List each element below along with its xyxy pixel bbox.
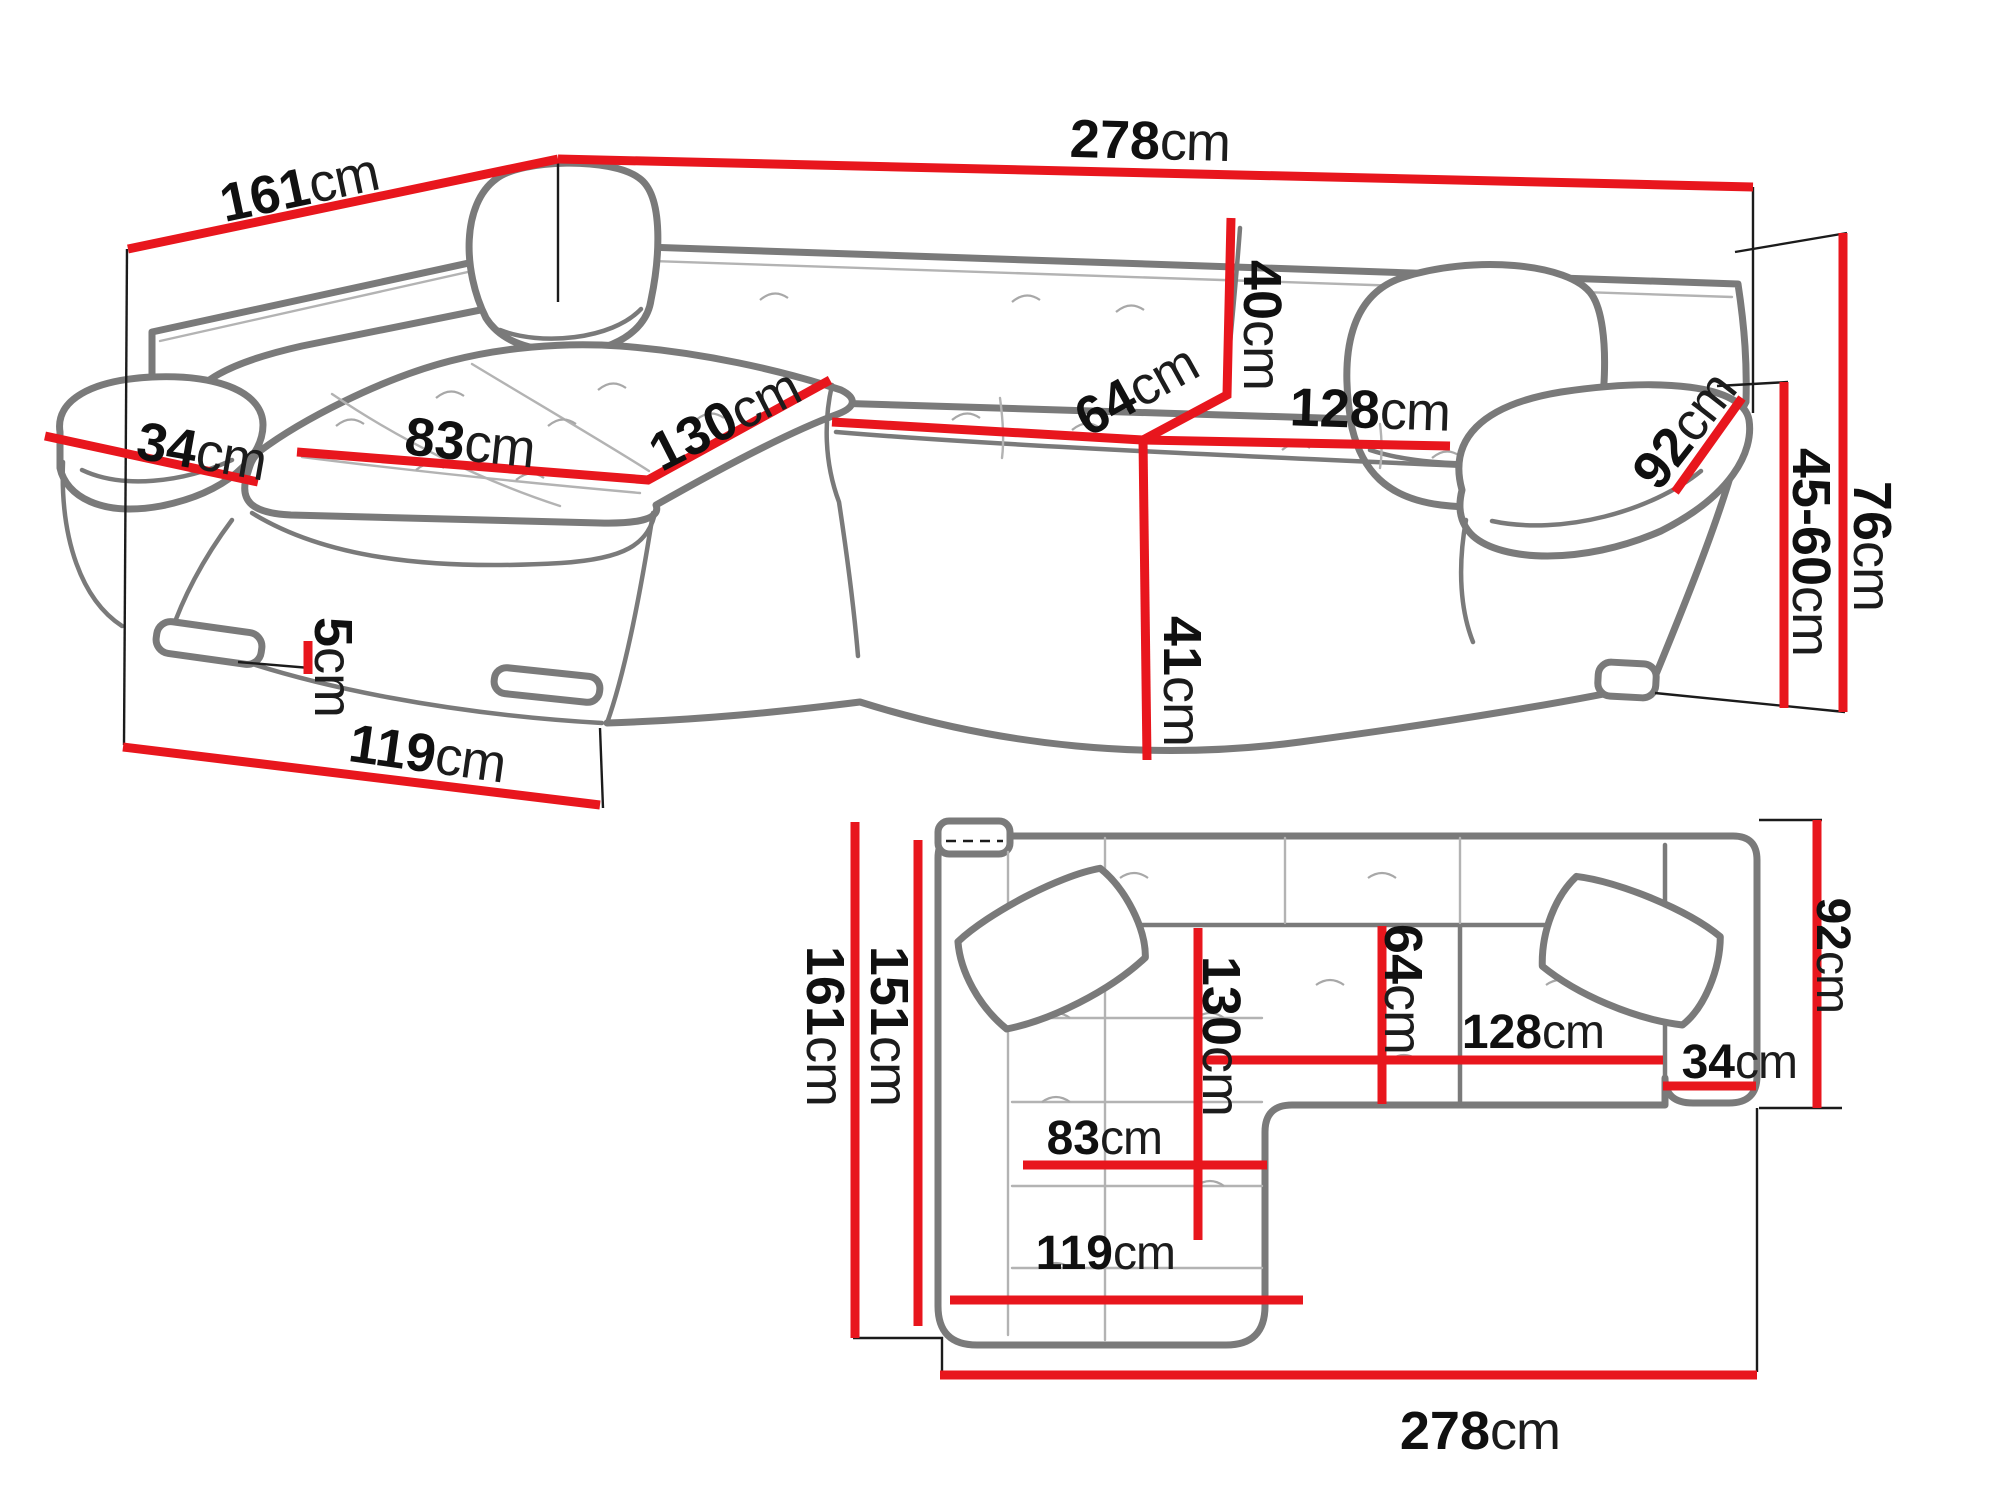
plan-dim-label-chaise-width: 83 cm (1047, 1112, 1162, 1165)
dim-unit: cm (192, 421, 271, 492)
dim-value: 83 (1047, 1112, 1100, 1165)
dim-value: 92 (1806, 898, 1859, 951)
plan-ext-bottom-left (853, 1338, 942, 1372)
dim-value: 34 (1682, 1036, 1736, 1089)
dim-value: 128 (1462, 1006, 1542, 1059)
plan-dim-label-chaise-outer: 119 cm (1036, 1227, 1175, 1280)
dim-value: 40 (1232, 260, 1292, 320)
leg-chaise-front (493, 667, 601, 704)
ext-chaise-front-corner (600, 728, 603, 808)
dim-label-chaise-outer: 119 cm (345, 713, 509, 794)
dim-value: 64 (1373, 924, 1433, 984)
dim-value: 119 (345, 713, 440, 785)
plan-dim-label-total-width: 278 cm (1400, 1401, 1560, 1461)
plan-dim-label-side-depth: 92 cm (1806, 898, 1859, 1013)
pillow-left (469, 163, 658, 352)
dim-unit: cm (1379, 380, 1451, 442)
dim-unit: cm (1842, 541, 1902, 611)
plan-dim-label-total-depth: 161 cm (795, 946, 855, 1106)
plan-dim-label-armrest-width: 34 cm (1682, 1036, 1797, 1089)
dim-value: 119 (1036, 1227, 1113, 1280)
dim-label-total-height: 76 cm (1842, 481, 1902, 611)
dim-line-seat-height (1143, 440, 1147, 760)
dim-unit: cm (1781, 586, 1841, 656)
dim-label-seat-height: 41 cm (1152, 616, 1212, 746)
dim-value: 45-60 (1781, 448, 1841, 586)
dim-unit: cm (1373, 984, 1433, 1054)
dim-value: 41 (1152, 616, 1212, 676)
plan-dim-label-inner-depth: 151 cm (859, 946, 919, 1106)
chaise-front-left-edge (171, 520, 232, 633)
dim-value: 161 (795, 946, 855, 1036)
base-bottom-edge (607, 684, 1652, 751)
dim-value: 128 (1289, 377, 1381, 440)
dim-unit: cm (432, 725, 510, 794)
plan-dim-label-chaise-length: 130 cm (1191, 956, 1251, 1116)
sofa-legs (154, 620, 1657, 704)
leg-left (154, 620, 263, 666)
dim-label-total-width: 278 cm (1069, 109, 1231, 173)
dim-unit: cm (1806, 951, 1859, 1013)
dim-value: 278 (1069, 109, 1161, 171)
dim-unit: cm (1113, 1227, 1175, 1280)
dim-label-total-depth: 161 cm (215, 142, 384, 234)
dim-value: 161 (215, 156, 316, 233)
plan-dim-label-seat-depth: 64 cm (1373, 924, 1433, 1054)
dim-value: 278 (1400, 1401, 1490, 1461)
dim-value: 151 (859, 946, 919, 1036)
dim-label-leg-height: 5 cm (303, 617, 363, 717)
dim-unit: cm (1152, 676, 1212, 746)
dim-unit: cm (795, 1036, 855, 1106)
plan-corner-block (938, 821, 1010, 854)
dim-label-backrest-height: 40 cm (1232, 260, 1292, 390)
dim-unit: cm (1490, 1401, 1560, 1461)
dim-label-seat-width: 128 cm (1289, 377, 1451, 443)
dim-value: 83 (402, 406, 468, 472)
dim-unit: cm (1159, 111, 1231, 173)
dim-unit: cm (1232, 320, 1292, 390)
dim-label-adjustable-height: 45-60 cm (1781, 448, 1841, 656)
chaise-front-right-edge (607, 513, 653, 723)
leg-right (1597, 662, 1657, 699)
dim-value: 34 (132, 411, 202, 481)
dim-value: 5 (303, 617, 363, 647)
dim-unit: cm (1735, 1036, 1797, 1089)
dim-unit: cm (303, 647, 363, 717)
dim-unit: cm (1191, 1046, 1251, 1116)
diagram-svg: 161 cm 278 cm 34 cm 83 cm 130 cm 64 cm 4… (0, 0, 2000, 1499)
plan-dim-label-seat-width: 128 cm (1462, 1006, 1604, 1059)
dim-value: 130 (1191, 956, 1251, 1046)
dim-unit: cm (1542, 1006, 1604, 1059)
dim-unit: cm (303, 142, 384, 215)
dim-unit: cm (1100, 1112, 1162, 1165)
ext-bottom-right (1655, 693, 1845, 712)
dim-value: 76 (1842, 481, 1902, 541)
sofa-dimension-diagram: 161 cm 278 cm 34 cm 83 cm 130 cm 64 cm 4… (0, 0, 2000, 1499)
dim-unit: cm (859, 1036, 919, 1106)
ext-left-vertical (124, 249, 127, 745)
dim-unit: cm (462, 413, 538, 480)
